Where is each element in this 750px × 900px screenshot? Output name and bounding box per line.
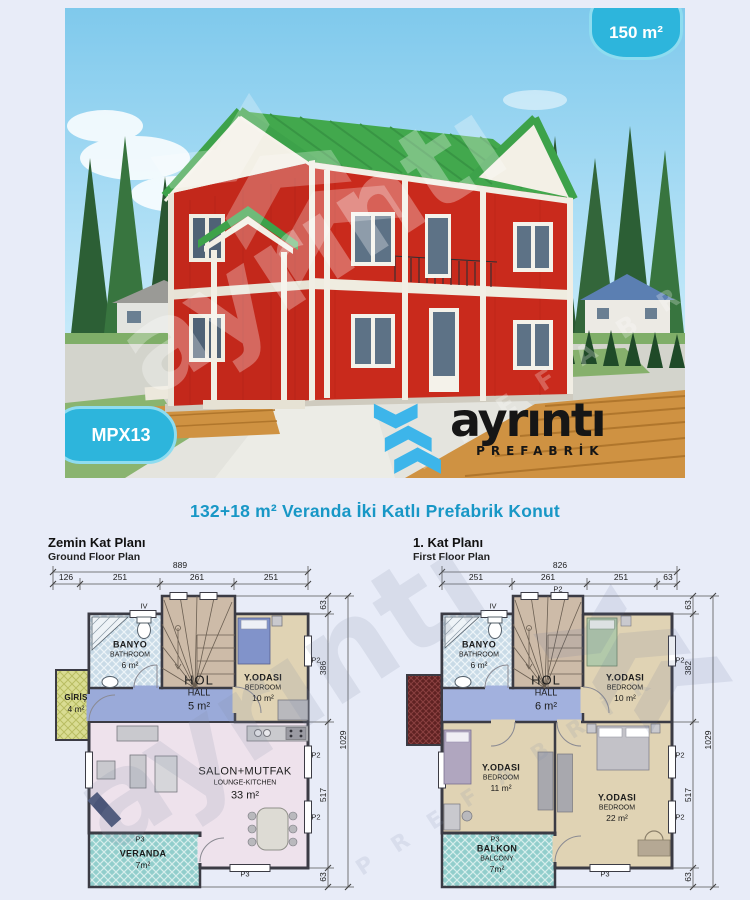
room-label-en: BEDROOM (599, 805, 635, 812)
brand-logo-icon (372, 399, 446, 477)
room-label: SALON+MUTFAK (198, 767, 291, 778)
room-area: 7m² (490, 865, 505, 874)
room-label: HOL (184, 674, 214, 687)
door-marker: P2 (553, 585, 562, 593)
room-area: 10 m² (614, 694, 636, 703)
room-label: BALKON (477, 845, 517, 854)
dim-segment: 63 (684, 872, 693, 881)
door-marker: P2 (675, 656, 684, 664)
model-badge: MPX13 (65, 406, 177, 464)
room-label-en: HALL (535, 689, 558, 698)
room-area: 7m² (136, 861, 151, 870)
first-floor-plan-drawing (405, 540, 745, 898)
room-label: Y.ODASI (482, 764, 520, 773)
dim-segment: 261 (541, 573, 555, 582)
dim-overall-width: 826 (553, 561, 567, 570)
room-label: Y.ODASI (606, 674, 644, 683)
room-area: 33 m² (231, 791, 259, 802)
model-badge-label: MPX13 (91, 425, 150, 446)
door-marker: P3 (490, 835, 499, 843)
dim-segment: 251 (614, 573, 628, 582)
dim-segment: 63 (684, 600, 693, 609)
dim-segment: 517 (684, 788, 693, 802)
dim-segment: 63 (319, 872, 328, 881)
dim-overall-height: 1029 (339, 731, 348, 750)
dim-segment: 126 (59, 573, 73, 582)
brand-logo-text: ayrıntı (450, 399, 605, 443)
room-label: HOL (531, 674, 561, 687)
dim-segment: 517 (319, 788, 328, 802)
dim-overall-height: 1029 (704, 731, 713, 750)
door-marker: P3 (240, 870, 249, 878)
room-label: GİRİŞ (64, 694, 87, 702)
room-label: BANYO (462, 641, 496, 650)
room-label: VERANDA (120, 850, 167, 859)
area-badge-label: 150 m² (609, 23, 663, 43)
door-marker: P2 (311, 656, 320, 664)
dim-segment: 251 (113, 573, 127, 582)
room-area: 22 m² (606, 814, 628, 823)
room-area: 6 m² (471, 661, 488, 670)
brand-logo: ayrıntı PREFABRİK (372, 399, 605, 477)
room-label-en: BATHROOM (459, 652, 499, 659)
dim-segment: 63 (319, 600, 328, 609)
dim-segment: 261 (190, 573, 204, 582)
window-marker: IV (140, 602, 147, 610)
first-floor-plan: 1. Kat Planı First Floor Plan (405, 540, 745, 898)
page-title: 132+18 m² Veranda İki Katlı Prefabrik Ko… (0, 501, 750, 522)
ground-floor-plan-drawing (40, 540, 380, 898)
dim-segment: 382 (684, 661, 693, 675)
door-marker: P2 (675, 751, 684, 759)
dim-segment: 63 (663, 573, 672, 582)
dim-segment: 251 (469, 573, 483, 582)
room-label-en: BEDROOM (607, 685, 643, 692)
room-area: 10 m² (252, 694, 274, 703)
door-marker: P2 (311, 813, 320, 821)
room-label: BANYO (113, 641, 147, 650)
dim-overall-width: 889 (173, 561, 187, 570)
room-area: 6 m² (122, 661, 139, 670)
room-label: Y.ODASI (598, 794, 636, 803)
room-area: 11 m² (490, 784, 511, 793)
door-marker: P2 (675, 813, 684, 821)
ground-floor-plan: Zemin Kat Planı Ground Floor Plan (40, 540, 380, 898)
room-area: 5 m² (188, 702, 210, 713)
window-marker: IV (489, 602, 496, 610)
dim-segment: 251 (264, 573, 278, 582)
area-badge: 150 m² (589, 8, 683, 60)
room-label-en: BALCONY (480, 856, 513, 863)
door-marker: P3 (135, 835, 144, 843)
door-marker: P3 (600, 870, 609, 878)
room-area: 6 m² (535, 702, 557, 713)
room-label-en: BEDROOM (245, 685, 281, 692)
room-label-en: HALL (188, 689, 211, 698)
room-label: Y.ODASI (244, 674, 282, 683)
room-label-en: BATHROOM (110, 652, 150, 659)
room-label-en: BEDROOM (483, 775, 519, 782)
room-area: 4 m² (68, 705, 85, 714)
room-label-en: LOUNGE-KITCHEN (214, 780, 277, 787)
door-marker: P2 (311, 751, 320, 759)
